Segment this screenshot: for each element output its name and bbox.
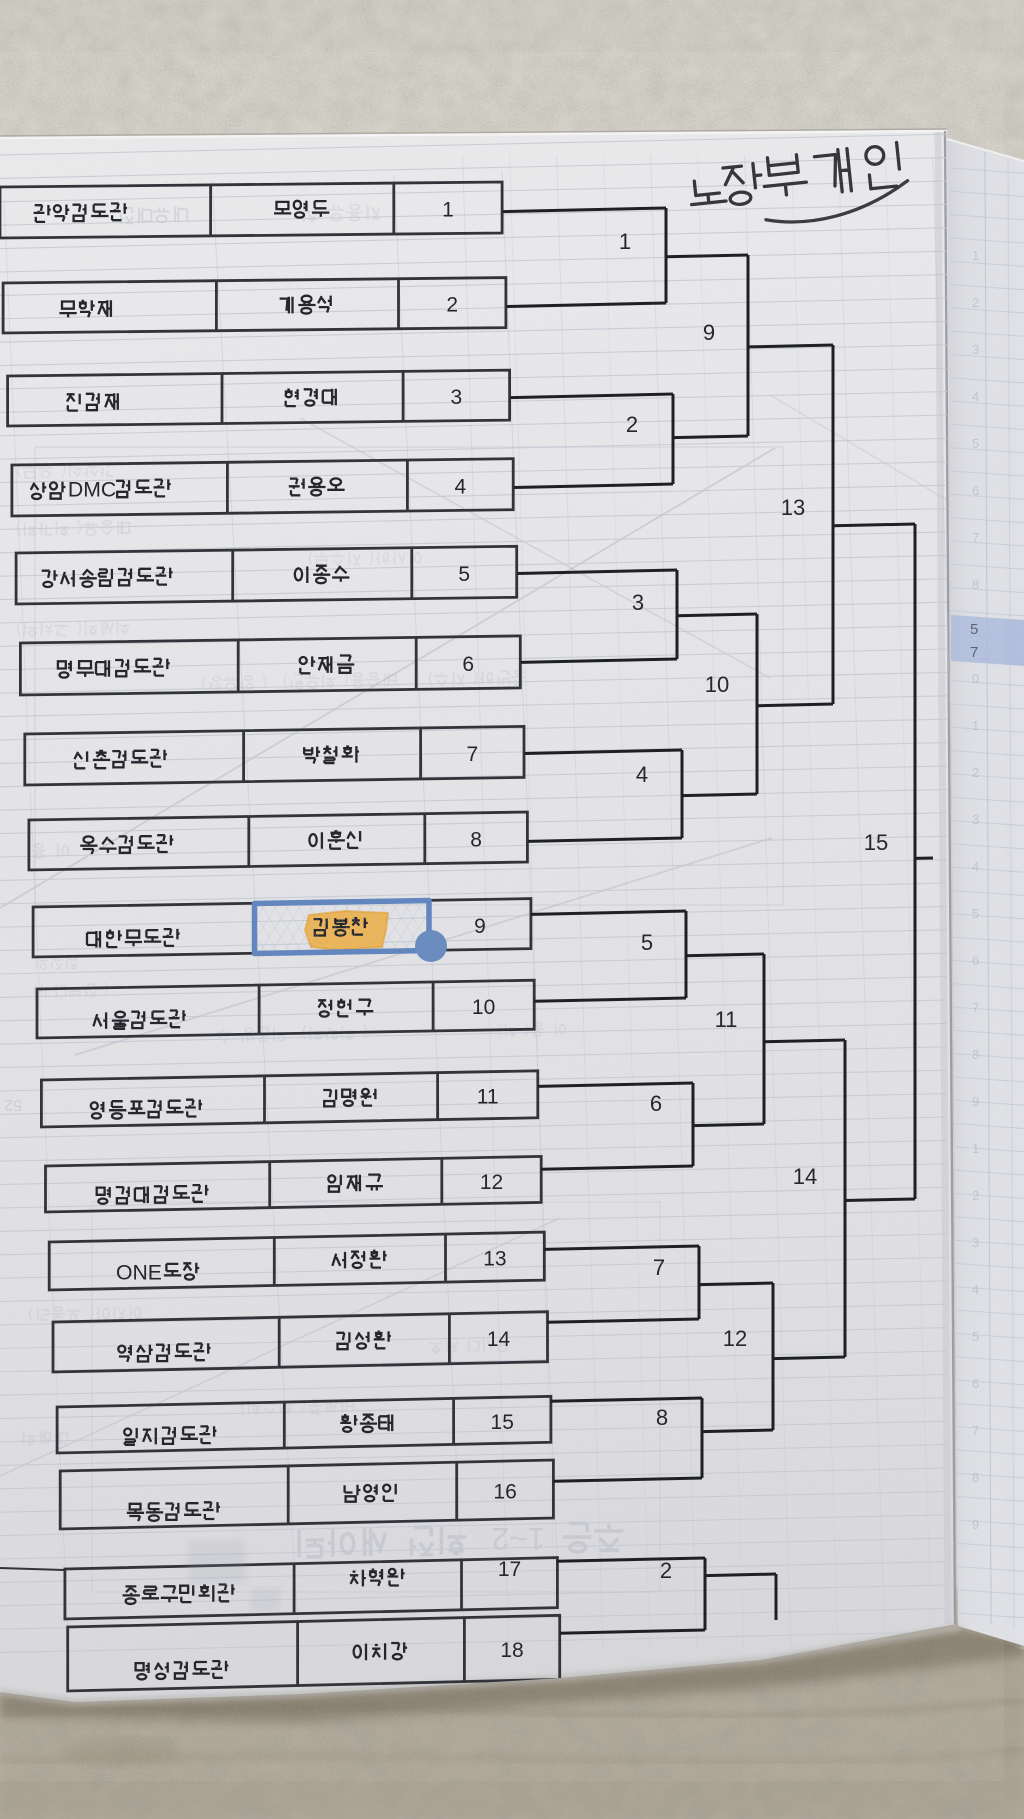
svg-text:(: ( (88, 1304, 94, 1321)
svg-text:1: 1 (972, 718, 979, 733)
svg-text:7: 7 (970, 644, 978, 661)
svg-text:6: 6 (972, 483, 979, 498)
svg-text:6: 6 (462, 653, 474, 676)
svg-text:1: 1 (972, 1141, 979, 1156)
svg-text:8: 8 (972, 1470, 979, 1485)
svg-text:7: 7 (653, 1255, 665, 1280)
svg-text:2: 2 (972, 765, 979, 780)
svg-text:3: 3 (451, 386, 463, 409)
svg-text:13: 13 (483, 1248, 506, 1271)
svg-text:3: 3 (972, 812, 979, 827)
svg-text:10: 10 (472, 996, 495, 1019)
svg-text:3: 3 (972, 342, 979, 357)
svg-text:4: 4 (454, 475, 466, 498)
svg-text:16: 16 (493, 1481, 516, 1504)
svg-text:5: 5 (641, 930, 653, 955)
svg-text:12: 12 (723, 1326, 747, 1351)
svg-text:5: 5 (970, 621, 978, 638)
svg-text:13: 13 (781, 495, 805, 520)
svg-text:9: 9 (474, 915, 486, 938)
svg-text:8: 8 (656, 1405, 668, 1430)
svg-text:1: 1 (619, 229, 631, 254)
svg-text:12: 12 (480, 1171, 503, 1194)
svg-text:5: 5 (458, 563, 470, 586)
svg-text:6: 6 (972, 1376, 979, 1391)
svg-text:9: 9 (972, 1094, 979, 1109)
svg-text:1: 1 (442, 199, 454, 222)
svg-text:5: 5 (972, 1329, 979, 1344)
svg-text:): ) (308, 551, 313, 568)
svg-text:8: 8 (470, 828, 482, 851)
svg-text:7: 7 (972, 530, 979, 545)
svg-text:3: 3 (632, 590, 644, 615)
svg-text:17: 17 (498, 1558, 521, 1581)
svg-text:1~2: 1~2 (492, 1521, 545, 1557)
svg-text:6: 6 (972, 953, 979, 968)
svg-text:9: 9 (703, 320, 715, 345)
svg-text:2: 2 (972, 1188, 979, 1203)
svg-text:18: 18 (500, 1639, 523, 1662)
svg-text:9: 9 (972, 1517, 979, 1532)
svg-text:): ) (28, 1306, 33, 1323)
svg-text:10: 10 (705, 672, 729, 697)
svg-text:8: 8 (972, 1047, 979, 1062)
svg-text:): ) (428, 670, 433, 687)
svg-text:4: 4 (972, 1282, 979, 1297)
svg-text:4: 4 (636, 762, 648, 787)
svg-text:52: 52 (4, 1096, 22, 1113)
svg-text:15: 15 (864, 830, 888, 855)
svg-text:8: 8 (972, 577, 979, 592)
svg-text:14: 14 (793, 1164, 817, 1189)
svg-text:6: 6 (650, 1091, 662, 1116)
svg-text:2: 2 (446, 294, 458, 317)
svg-text:4: 4 (972, 859, 979, 874)
svg-text:7: 7 (466, 743, 478, 766)
svg-text:DMC: DMC (68, 478, 116, 501)
svg-text:5: 5 (972, 906, 979, 921)
svg-text:2: 2 (972, 295, 979, 310)
svg-text:5: 5 (972, 436, 979, 451)
svg-text:7: 7 (972, 1423, 979, 1438)
svg-text:4: 4 (972, 389, 979, 404)
svg-text:ONE: ONE (116, 1261, 162, 1284)
svg-text:(: ( (368, 549, 374, 566)
svg-text:15: 15 (491, 1411, 514, 1434)
svg-text:2: 2 (626, 412, 638, 437)
svg-text:14: 14 (487, 1328, 511, 1351)
svg-text:11: 11 (715, 1007, 738, 1032)
svg-text:11: 11 (477, 1086, 499, 1109)
svg-text:7: 7 (972, 1000, 979, 1015)
svg-text:2: 2 (660, 1558, 672, 1583)
svg-text:0: 0 (972, 671, 979, 686)
svg-text:3: 3 (972, 1235, 979, 1250)
svg-text:1: 1 (972, 248, 979, 263)
